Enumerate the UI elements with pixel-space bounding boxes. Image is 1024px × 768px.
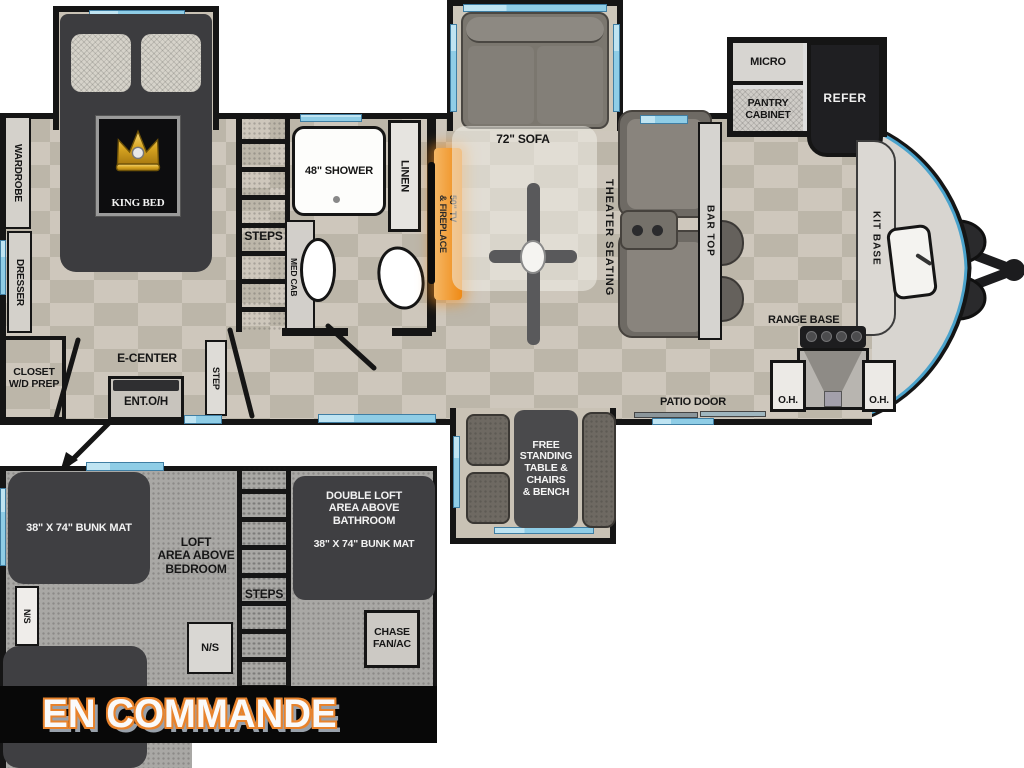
loft-pointer-line [68,420,112,464]
steps-label: STEPS [242,230,285,243]
status-banner-text: EN COMMANDE [0,692,337,737]
window [494,527,594,534]
microwave: MICRO [733,43,803,85]
patio-door-label: PATIO DOOR [660,396,760,408]
tv-icon [428,162,435,284]
range-burners [800,326,866,348]
loft-area-label: LOFT AREA ABOVE BEDROOM [150,524,242,588]
pillow [141,34,201,92]
dinette-chair [466,472,510,524]
door-swing-line [56,340,78,418]
wardrobe-cabinet: WARDROBE [4,116,31,229]
range-base-label: RANGE BASE [768,314,878,326]
chase-fan-ac: CHASE FAN/AC [364,610,420,668]
patio-door-panel [652,418,714,425]
range-body [797,348,869,410]
door-swing-line [328,326,374,368]
king-bed-badge: KING BED [96,116,180,216]
cupholder-icon [652,225,663,236]
linen-closet: LINEN [388,120,421,232]
window [450,24,457,112]
faucet-icon [915,253,932,266]
window [0,488,6,566]
dinette-slideout: FREE STANDING TABLE & CHAIRS & BENCH [450,408,616,544]
crown-icon [110,125,166,177]
overhead-cabinet: O.H. [770,360,806,412]
sofa-back [466,17,604,43]
double-loft-label: DOUBLE LOFT AREA ABOVE BATHROOM [293,490,435,527]
loft-steps-label: STEPS [242,588,286,601]
dinette-bench [582,412,616,528]
sofa-slideout [447,0,623,131]
ceiling-fan-hub-icon [520,240,546,274]
nightstand: N/S [15,586,39,646]
shower: 48" SHOWER [292,126,386,216]
status-banner: EN COMMANDE [0,686,437,743]
overhead-cabinet: O.H. [862,360,896,412]
theater-seating-label: THEATER SEATING [601,140,617,336]
kitchen-upper-block: MICRO PANTRY CABINET REFER [727,37,887,137]
sofa-label: 72" SOFA [468,133,578,146]
nightstand: N/S [187,622,233,674]
kingpin-icon [1003,259,1024,281]
pillow [71,34,131,92]
sofa-cushion [537,46,603,124]
king-bed-label: KING BED [99,197,177,209]
door-swings [0,300,420,480]
window [453,436,460,508]
dinette-chair [466,414,510,466]
kitchen-sink [886,224,938,301]
cupholder-console [620,210,678,250]
cupholder-icon [632,225,643,236]
dinette-table: FREE STANDING TABLE & CHAIRS & BENCH [514,410,578,528]
shower-drain-icon [333,196,340,203]
patio-door-panel [700,411,766,417]
rv-floorplan-screenshot: KING BED WARDROBE DRESSER CLOSET W/D PRE… [0,0,1024,768]
window [463,4,607,12]
bar-top-counter: BAR TOP [698,122,722,340]
window [0,240,6,295]
bathroom-sink [300,238,336,302]
king-bed: KING BED [60,14,212,272]
window [86,462,164,471]
pantry-cabinet: PANTRY CABINET [733,89,803,131]
window [300,114,362,122]
double-loft-mat-label: 38" X 74" BUNK MAT [293,539,435,551]
window [640,115,688,124]
window [613,24,620,112]
sofa-cushion [468,46,534,124]
loft-steps: STEPS [237,466,291,686]
bunk-mat: 38" X 74" BUNK MAT [8,472,150,584]
double-loft-mat: DOUBLE LOFT AREA ABOVE BATHROOM 38" X 74… [293,476,435,600]
door-swing-line [230,330,252,416]
sofa [461,12,609,129]
